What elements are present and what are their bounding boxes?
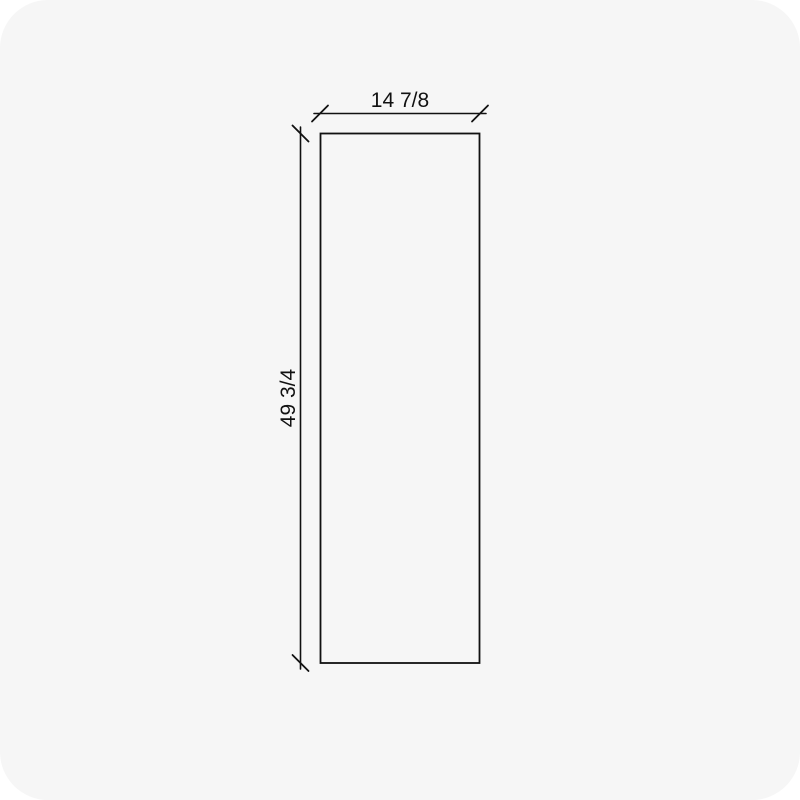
- height-dimension-label: 49 3/4: [277, 368, 300, 427]
- drawing-canvas: 14 7/8 49 3/4: [0, 0, 800, 800]
- width-dimension: 14 7/8: [312, 89, 488, 122]
- panel-outline: [321, 134, 480, 664]
- dimension-drawing: 14 7/8 49 3/4: [0, 0, 800, 800]
- width-dimension-label: 14 7/8: [371, 89, 429, 112]
- height-dimension: 49 3/4: [277, 126, 309, 672]
